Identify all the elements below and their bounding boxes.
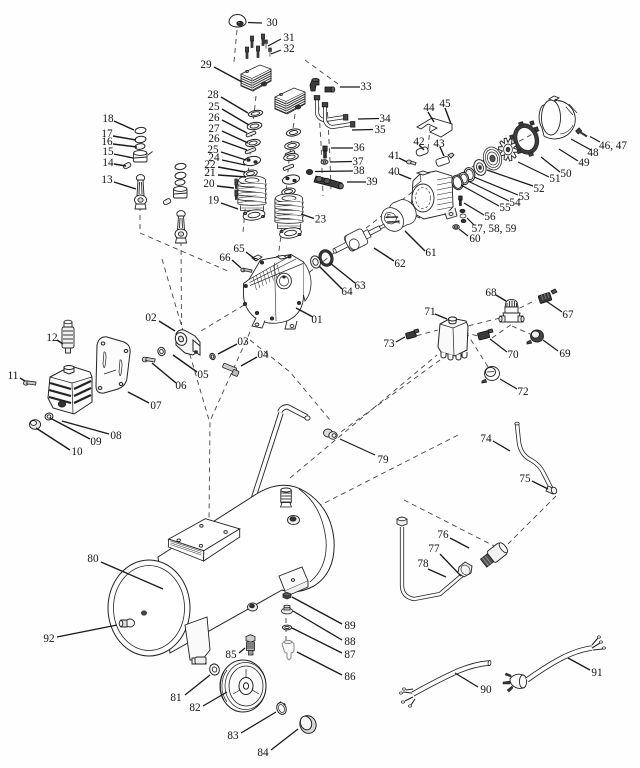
svg-text:62: 62 xyxy=(394,258,405,270)
svg-text:88: 88 xyxy=(344,636,356,648)
svg-text:82: 82 xyxy=(189,702,200,714)
svg-text:05: 05 xyxy=(197,369,209,381)
svg-text:65: 65 xyxy=(233,243,245,255)
svg-text:41: 41 xyxy=(388,150,399,162)
svg-text:14: 14 xyxy=(102,157,114,169)
svg-text:73: 73 xyxy=(383,338,395,350)
svg-text:35: 35 xyxy=(374,124,386,136)
svg-text:11: 11 xyxy=(8,370,19,382)
svg-text:72: 72 xyxy=(517,386,528,398)
svg-text:06: 06 xyxy=(175,380,187,392)
svg-text:20: 20 xyxy=(203,178,215,190)
svg-text:67: 67 xyxy=(562,309,574,321)
svg-text:04: 04 xyxy=(257,349,269,361)
svg-text:79: 79 xyxy=(377,454,389,466)
svg-text:28: 28 xyxy=(207,89,219,101)
svg-text:83: 83 xyxy=(227,730,239,742)
svg-text:64: 64 xyxy=(341,286,353,298)
svg-text:07: 07 xyxy=(150,400,162,412)
svg-text:80: 80 xyxy=(87,553,99,565)
svg-text:10: 10 xyxy=(71,446,83,458)
svg-text:40: 40 xyxy=(388,166,400,178)
svg-text:51: 51 xyxy=(549,173,560,185)
svg-text:66: 66 xyxy=(219,252,231,264)
svg-text:60: 60 xyxy=(469,233,481,245)
svg-text:56: 56 xyxy=(484,211,496,223)
svg-text:29: 29 xyxy=(200,59,212,71)
svg-text:08: 08 xyxy=(110,430,122,442)
svg-text:77: 77 xyxy=(428,543,440,555)
svg-text:85: 85 xyxy=(225,649,237,661)
svg-text:90: 90 xyxy=(480,684,492,696)
svg-text:86: 86 xyxy=(344,671,356,683)
svg-text:36: 36 xyxy=(353,142,365,154)
svg-text:09: 09 xyxy=(90,436,102,448)
svg-text:33: 33 xyxy=(360,81,372,93)
svg-text:44: 44 xyxy=(423,102,435,114)
svg-text:76: 76 xyxy=(437,529,449,541)
svg-text:91: 91 xyxy=(591,667,602,679)
svg-text:74: 74 xyxy=(480,433,492,445)
svg-text:54: 54 xyxy=(509,197,521,209)
svg-text:84: 84 xyxy=(257,747,269,759)
svg-text:32: 32 xyxy=(283,43,294,55)
svg-text:38: 38 xyxy=(353,165,365,177)
svg-text:61: 61 xyxy=(425,247,436,259)
svg-text:75: 75 xyxy=(519,473,531,485)
svg-text:89: 89 xyxy=(344,620,356,632)
svg-text:68: 68 xyxy=(485,287,497,299)
svg-text:55: 55 xyxy=(499,202,511,214)
svg-text:63: 63 xyxy=(354,280,366,292)
svg-text:42: 42 xyxy=(413,136,424,148)
svg-text:13: 13 xyxy=(101,174,113,186)
svg-text:81: 81 xyxy=(170,692,181,704)
svg-text:50: 50 xyxy=(560,168,572,180)
svg-text:03: 03 xyxy=(237,336,249,348)
svg-text:78: 78 xyxy=(417,558,429,570)
svg-text:39: 39 xyxy=(366,176,378,188)
svg-text:92: 92 xyxy=(43,633,54,645)
svg-text:23: 23 xyxy=(315,214,327,226)
svg-text:69: 69 xyxy=(559,348,571,360)
svg-text:19: 19 xyxy=(208,195,220,207)
svg-text:70: 70 xyxy=(507,349,519,361)
svg-text:30: 30 xyxy=(266,17,278,29)
svg-text:18: 18 xyxy=(102,113,114,125)
svg-text:46, 47: 46, 47 xyxy=(599,140,627,152)
svg-text:49: 49 xyxy=(578,157,590,169)
svg-text:71: 71 xyxy=(424,306,435,318)
svg-text:02: 02 xyxy=(145,312,156,324)
svg-text:01: 01 xyxy=(311,314,322,326)
svg-text:43: 43 xyxy=(433,138,445,150)
svg-text:12: 12 xyxy=(46,332,57,344)
svg-text:87: 87 xyxy=(344,649,356,661)
svg-text:52: 52 xyxy=(533,183,544,195)
